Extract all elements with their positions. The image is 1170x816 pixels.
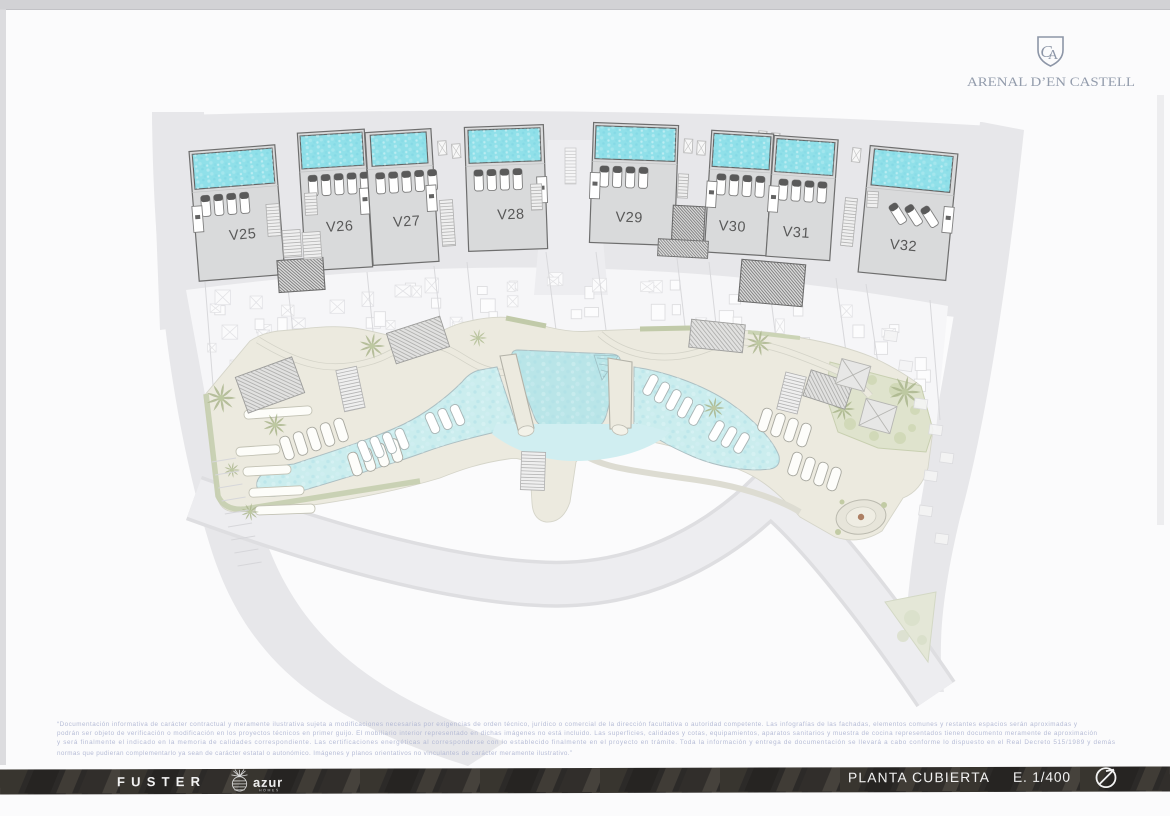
svg-text:FUSTER: FUSTER (117, 774, 206, 789)
svg-text:podrán ser objeto de verificac: podrán ser objeto de verificación o modi… (57, 730, 1097, 737)
svg-text:E. 1/400: E. 1/400 (1013, 770, 1071, 785)
svg-text:PLANTA CUBIERTA: PLANTA CUBIERTA (848, 770, 990, 785)
svg-text:HOMES: HOMES (259, 788, 280, 792)
svg-text:y será finalmente el indicado: y será finalmente el indicado en la memo… (57, 739, 1115, 746)
svg-text:“Documentación informativa de: “Documentación informativa de carácter c… (57, 721, 1078, 728)
svg-text:normas que pudieran complement: normas que pudieran complementarlo ya se… (57, 750, 572, 757)
svg-text:ARENAL D’EN CASTELL: ARENAL D’EN CASTELL (967, 74, 1135, 89)
svg-text:A: A (1048, 48, 1059, 63)
